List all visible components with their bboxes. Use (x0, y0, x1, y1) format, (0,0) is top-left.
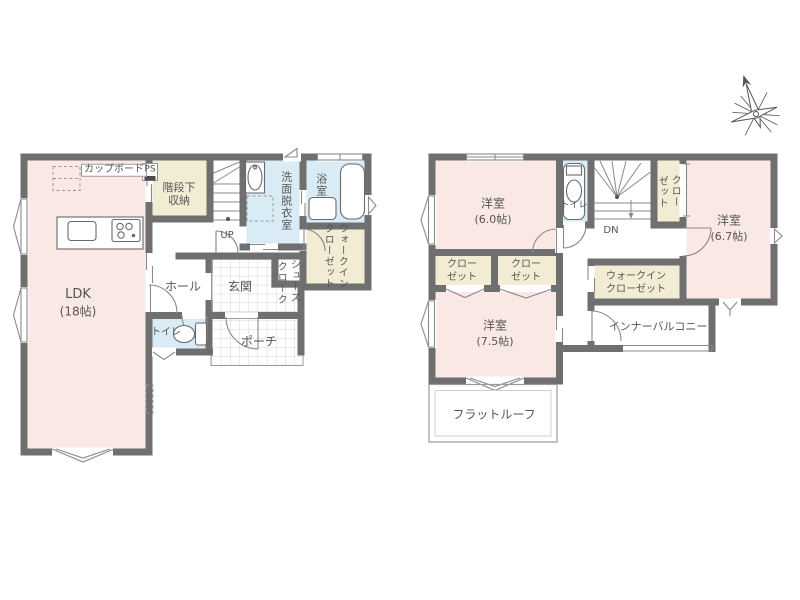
label-wic-1f-col2: クローゼット (322, 223, 333, 289)
label-stair-storage-1: 階段下 (163, 182, 196, 194)
label-cupboard: カップボード (81, 164, 147, 177)
door-wic-2f-slide (588, 266, 595, 292)
label-shoes-col2: クローク (275, 261, 286, 305)
window-bedroom60-top (467, 154, 524, 160)
label-closet-b-2: ゼット (511, 273, 541, 284)
label-shoes-col1: シューズ (288, 259, 299, 303)
label-closet-a-2: ゼット (447, 273, 477, 284)
floor1-stairs (214, 162, 240, 221)
label-bedroom67: 洋室 (717, 215, 741, 228)
label-bedroom75: 洋室 (483, 320, 507, 333)
label-flat-roof: フラットルーフ (452, 409, 535, 422)
window-bath-top (318, 154, 363, 160)
floor-plan-page: カップボード PS 階段下 収納 UP 洗面脱衣室 浴室 ウォークイン クローゼ… (0, 0, 800, 600)
label-bath: 浴室 (315, 173, 327, 197)
door-toilet-2f (564, 225, 587, 248)
label-ldk: LDK (65, 288, 91, 302)
washroom-sink (246, 162, 265, 193)
label-washroom: 洗面脱衣室 (280, 171, 292, 231)
label-wic-2f-2: クローゼット (606, 285, 666, 296)
door-washroom-slide (250, 245, 278, 250)
kitchen-counter (57, 217, 143, 249)
label-ldk-size: (18帖) (60, 306, 97, 319)
kitchen-stove (112, 220, 140, 242)
floor2-stairs (595, 161, 651, 219)
door-bath-slide (302, 191, 306, 216)
label-bedroom75-size: (7.5帖) (476, 336, 513, 348)
door-ldk-slide (147, 253, 153, 283)
balcony-railing (623, 346, 712, 352)
label-hall: ホール (165, 281, 201, 294)
window-bedroom67-bottom (723, 302, 737, 316)
label-toilet-2f: トイレ (560, 201, 587, 210)
label-toilet-1f: トイレ (151, 328, 181, 339)
label-up: UP (220, 231, 233, 242)
label-wic-1f-col1: ウォークイン (336, 223, 347, 289)
label-bedroom60-size: (6.0帖) (474, 214, 511, 226)
label-balcony: インナーバルコニー (609, 321, 708, 333)
label-closet-a-1: クロー (447, 260, 477, 271)
compass-icon (719, 68, 784, 143)
label-ps: PS (144, 165, 155, 174)
toilet-fixture-2f (564, 164, 585, 220)
kitchen-sink (68, 222, 96, 241)
label-porch: ポーチ (241, 336, 277, 349)
label-closet-tall-col1: クロー (669, 175, 680, 208)
label-closet-tall-col2: ゼット (656, 176, 667, 209)
label-wic-2f-1: ウォークイン (606, 272, 666, 283)
label-bedroom60: 洋室 (481, 198, 505, 211)
label-stair-storage-2: 収納 (168, 195, 190, 207)
label-bedroom67-size: (6.7帖) (710, 231, 747, 243)
label-closet-b-1: クロー (511, 260, 541, 271)
label-genkan: 玄関 (228, 281, 252, 294)
label-dn: DN (603, 226, 618, 237)
floor-plan-canvas (0, 0, 800, 600)
floor2-plan (421, 153, 782, 443)
